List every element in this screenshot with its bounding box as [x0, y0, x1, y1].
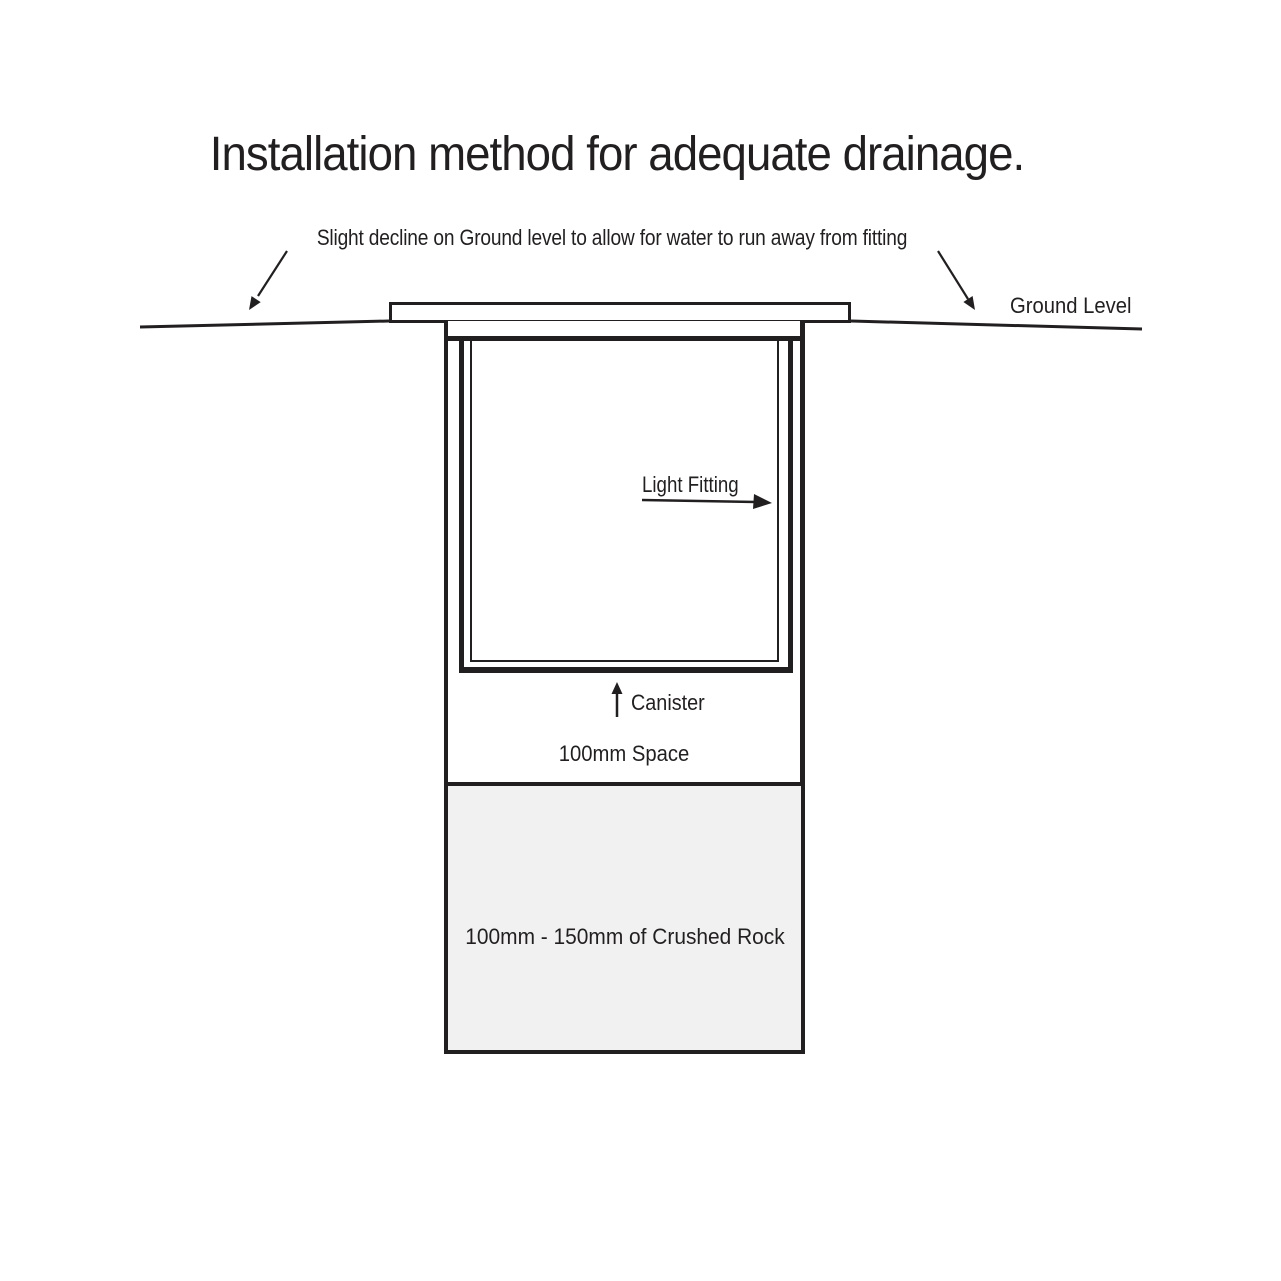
light-fitting-label: Light Fitting — [642, 472, 739, 498]
ground-level-label: Ground Level — [1010, 293, 1132, 319]
decline-arrow-right — [938, 251, 975, 310]
crushed-rock-label: 100mm - 150mm of Crushed Rock — [465, 924, 784, 950]
light-fitting-body — [470, 340, 779, 662]
decline-arrow-left — [249, 251, 287, 310]
ground-line-right — [851, 321, 1142, 329]
decline-note-label: Slight decline on Ground level to allow … — [317, 225, 907, 251]
space-label: 100mm Space — [559, 741, 690, 767]
installation-diagram: Installation method for adequate drainag… — [0, 0, 1281, 1281]
crushed-rock-layer: 100mm - 150mm of Crushed Rock — [444, 782, 805, 1054]
ground-line-left — [140, 321, 389, 327]
fitting-flange — [389, 302, 851, 323]
canister-label: Canister — [631, 690, 705, 716]
page-title: Installation method for adequate drainag… — [210, 128, 1024, 182]
